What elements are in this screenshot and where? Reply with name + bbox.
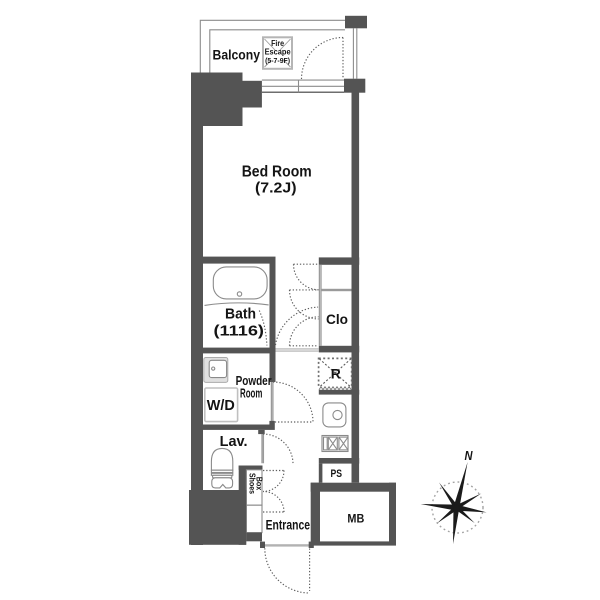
svg-text:Box: Box (254, 477, 263, 491)
svg-text:(5-7-9F): (5-7-9F) (265, 56, 290, 65)
svg-text:Clo: Clo (326, 311, 348, 327)
svg-text:MB: MB (347, 511, 364, 525)
svg-text:W/D: W/D (207, 398, 235, 414)
svg-text:Room: Room (240, 386, 262, 401)
svg-text:Entrance: Entrance (266, 517, 311, 532)
svg-text:R: R (331, 365, 341, 381)
svg-text:N: N (465, 449, 474, 463)
svg-text:(1116): (1116) (214, 323, 265, 339)
svg-text:Lav.: Lav. (220, 433, 248, 450)
svg-text:Bath: Bath (225, 306, 256, 322)
svg-text:(7.2J): (7.2J) (255, 180, 297, 196)
svg-text:Bed Room: Bed Room (242, 164, 312, 181)
svg-text:PS: PS (331, 468, 343, 480)
svg-text:Balcony: Balcony (213, 46, 261, 62)
